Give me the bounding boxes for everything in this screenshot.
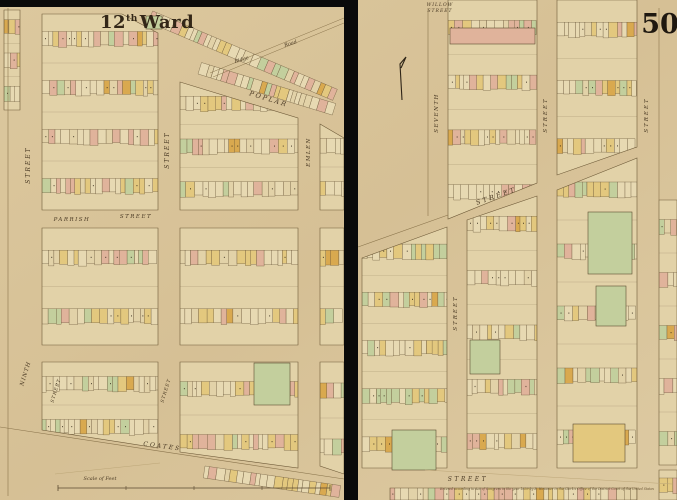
street-label-willow-street: STREET xyxy=(427,8,452,14)
imprint-line: Entered according to Act of Congress in … xyxy=(439,487,654,491)
city-block xyxy=(42,228,158,345)
map-image: 12thWard 50 Ridge Road POPLAR STREET PAR… xyxy=(0,0,677,500)
street-label-emlen: EMLEN xyxy=(306,137,312,168)
street-label-parrish-street: STREET xyxy=(120,214,152,220)
city-block xyxy=(320,228,344,345)
street-label-willow: WILLOW xyxy=(427,2,454,8)
street-label-seventh: SEVENTH xyxy=(434,93,440,133)
city-block xyxy=(659,200,677,465)
street-label-left-vertical: STREET xyxy=(25,146,32,183)
sheet-seam-bar xyxy=(344,0,358,500)
city-block xyxy=(467,196,537,468)
street-label-right-vertical-3: STREET xyxy=(644,97,650,132)
street-label-mid-vertical: STREET xyxy=(164,131,171,168)
large-building-footprint xyxy=(573,424,625,462)
city-block xyxy=(320,124,345,210)
street-label-right-vertical-2: STREET xyxy=(543,97,549,132)
city-block xyxy=(42,14,158,210)
large-building-footprint xyxy=(392,430,436,470)
city-block xyxy=(4,10,20,110)
large-building-footprint xyxy=(596,286,626,326)
ward-word: Ward xyxy=(139,12,194,33)
plate-number: 50 xyxy=(641,9,677,40)
large-building-footprint xyxy=(254,363,290,405)
large-building-footprint xyxy=(470,340,500,374)
city-block xyxy=(180,228,298,345)
top-black-border xyxy=(0,0,352,7)
ward-title: 12thWard xyxy=(100,12,194,33)
large-building-footprint xyxy=(588,212,632,274)
ward-suffix: th xyxy=(126,14,138,24)
scale-bar-label: Scale of Feet xyxy=(84,476,118,482)
street-label-right-vertical-1: STREET xyxy=(453,295,459,330)
atlas-map-page: 12thWard 50 Ridge Road POPLAR STREET PAR… xyxy=(0,0,677,500)
city-block xyxy=(320,362,344,474)
large-building-footprint xyxy=(450,28,535,44)
city-block xyxy=(557,0,637,175)
street-label-parrish: PARRISH xyxy=(53,217,91,223)
ward-number: 12 xyxy=(100,12,126,33)
street-label-bottom: STREET xyxy=(448,476,488,483)
city-block xyxy=(659,470,677,500)
